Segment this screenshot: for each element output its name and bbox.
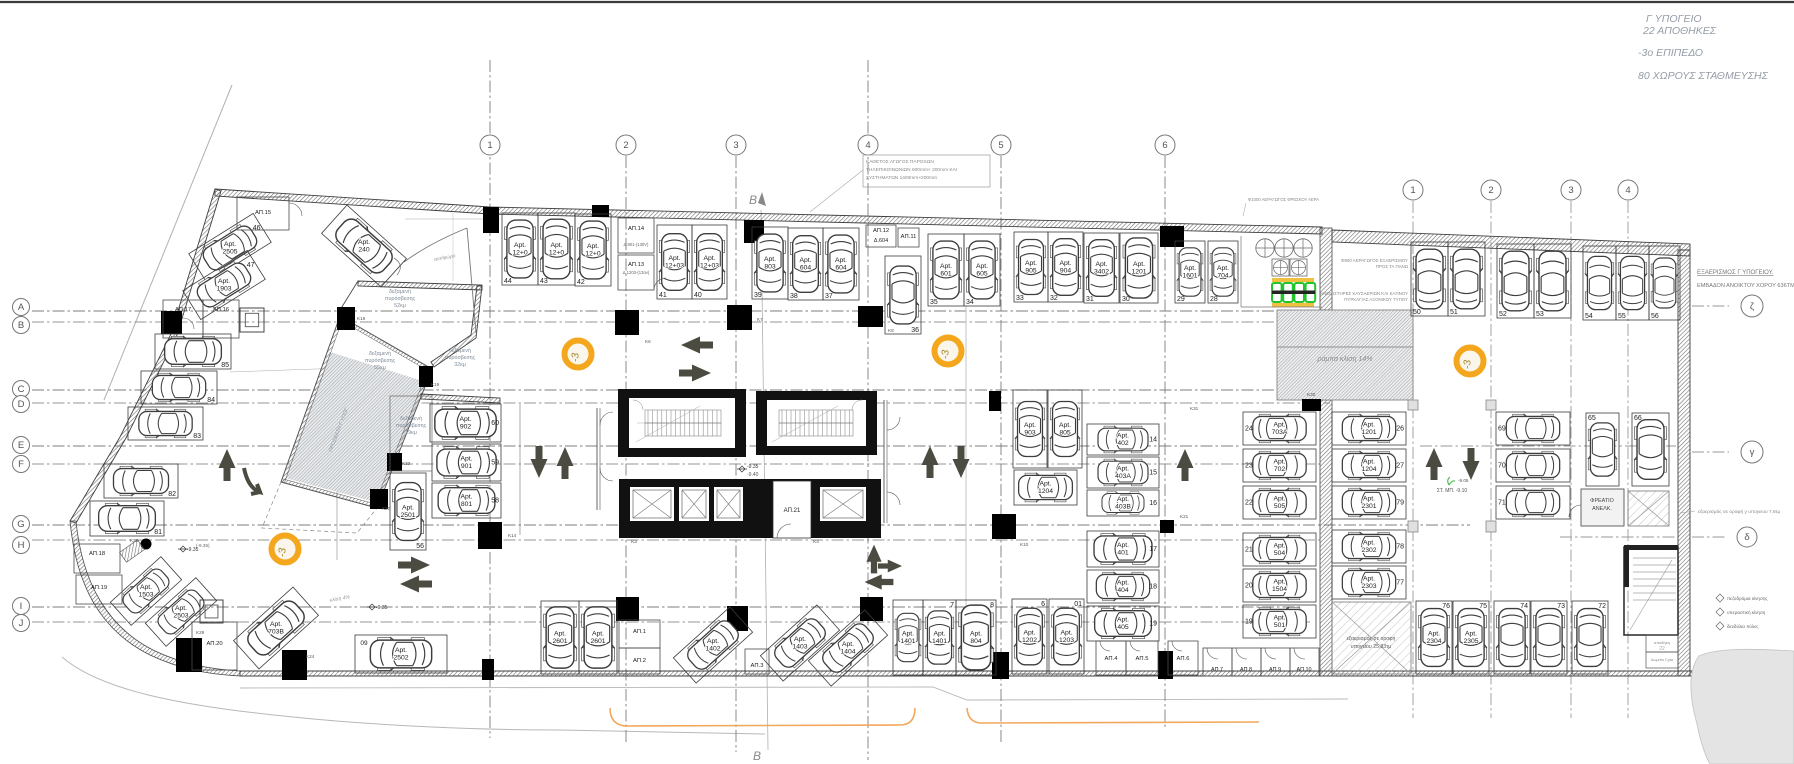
svg-text:1201: 1201 [1361, 429, 1376, 436]
svg-text:805: 805 [1059, 430, 1071, 437]
svg-text:H: H [18, 540, 25, 551]
svg-text:Γ ΥΠΟΓΕΙΟ: Γ ΥΠΟΓΕΙΟ [1646, 13, 1702, 25]
svg-text:55: 55 [1618, 313, 1626, 320]
svg-text:πυρόσβεσης: πυρόσβεσης [365, 357, 396, 364]
svg-text:δ: δ [1744, 532, 1749, 543]
svg-text:2601: 2601 [590, 638, 605, 645]
svg-text:Apt.: Apt. [1363, 496, 1375, 503]
svg-text:75: 75 [1479, 603, 1487, 610]
svg-text:ΑΠ.1: ΑΠ.1 [633, 629, 646, 635]
svg-text:K19: K19 [431, 382, 440, 387]
svg-text:52: 52 [1499, 311, 1507, 318]
svg-text:22: 22 [1245, 500, 1253, 507]
svg-text:50: 50 [1413, 309, 1421, 316]
svg-text:601: 601 [940, 271, 952, 278]
svg-text:78: 78 [1396, 544, 1404, 551]
svg-text:-9.40: -9.40 [747, 472, 759, 478]
svg-text:ΕΜΒΑΔΟΝ ΑΝΟΙΚΤΟΥ ΧΟΡΟΥ 636ΤΜ²: ΕΜΒΑΔΟΝ ΑΝΟΙΚΤΟΥ ΧΟΡΟΥ 636ΤΜ² [1697, 283, 1794, 289]
svg-text:77: 77 [1396, 580, 1404, 587]
svg-text:ΑΠ.4: ΑΠ.4 [1105, 656, 1119, 662]
svg-text:K4: K4 [813, 539, 819, 545]
svg-text:K6: K6 [645, 339, 651, 344]
svg-text:ΑΠ.18: ΑΠ.18 [89, 551, 105, 557]
svg-text:30: 30 [1122, 296, 1130, 303]
svg-text:19κμ: 19κμ [405, 430, 417, 436]
svg-text:Apt.: Apt. [459, 416, 471, 423]
svg-text:Apt.: Apt. [402, 505, 414, 512]
svg-text:1: 1 [487, 140, 492, 151]
svg-text:Apt.: Apt. [1117, 433, 1129, 440]
svg-text:31: 31 [1086, 296, 1094, 303]
svg-text:K24: K24 [306, 654, 315, 659]
svg-text:Apt.: Apt. [842, 641, 854, 648]
svg-text:-9.35: -9.35 [376, 605, 388, 611]
svg-text:ΑΠ.3: ΑΠ.3 [751, 663, 764, 669]
svg-text:81: 81 [154, 529, 162, 536]
svg-text:7: 7 [950, 602, 954, 609]
svg-text:δεξαμενή: δεξαμενή [389, 288, 411, 295]
svg-text:Apt.: Apt. [270, 621, 282, 628]
svg-text:1201: 1201 [1131, 269, 1146, 276]
svg-text:905: 905 [1025, 268, 1037, 275]
svg-text:Apt.: Apt. [1060, 630, 1072, 637]
svg-text:84: 84 [207, 397, 215, 404]
svg-text:K21: K21 [1180, 514, 1189, 519]
svg-text:28: 28 [1210, 296, 1218, 303]
svg-text:-9.05: -9.05 [1458, 478, 1469, 483]
svg-text:1204: 1204 [1361, 466, 1376, 473]
svg-text:51: 51 [1450, 309, 1458, 316]
svg-text:Apt.: Apt. [707, 638, 719, 645]
svg-text:-9.35: -9.35 [747, 464, 759, 470]
svg-text:Apt.: Apt. [514, 242, 526, 249]
svg-text:09: 09 [360, 640, 368, 647]
svg-text:Apt.: Apt. [703, 255, 715, 262]
svg-text:604: 604 [800, 265, 812, 272]
svg-text:ΑΠ.13: ΑΠ.13 [628, 262, 644, 268]
svg-text:704: 704 [1217, 273, 1229, 280]
svg-text:K3: K3 [631, 539, 637, 545]
svg-text:ΑΠ.19: ΑΠ.19 [91, 585, 107, 591]
svg-text:Apt.: Apt. [902, 631, 914, 638]
svg-text:ΚΑΘΕΤΟΣ ΑΓΩΓΟΣ ΠΑΡΟΧΩΝ: ΚΑΘΕΤΟΣ ΑΓΩΓΟΣ ΠΑΡΟΧΩΝ [866, 159, 934, 165]
svg-text:39: 39 [754, 292, 762, 299]
svg-text:Apt.: Apt. [395, 647, 407, 654]
svg-text:ΣΤ. ΜΠ. -9.10: ΣΤ. ΜΠ. -9.10 [1437, 488, 1468, 494]
svg-text:702: 702 [1274, 466, 1286, 473]
svg-text:-3: -3 [1462, 360, 1474, 369]
svg-text:εξαερισμός σε οροφή γ υπογειου: εξαερισμός σε οροφή γ υπογειου 7,6τμ [1698, 508, 1781, 515]
svg-text:Apt.: Apt. [1184, 265, 1196, 272]
svg-text:801: 801 [461, 501, 473, 508]
svg-text:1504: 1504 [1272, 586, 1287, 593]
svg-text:1601: 1601 [1182, 273, 1197, 280]
svg-text:Apt.: Apt. [1363, 540, 1375, 547]
svg-text:604: 604 [835, 265, 847, 272]
svg-text:Apt.: Apt. [1428, 631, 1440, 638]
svg-text:1204: 1204 [1038, 488, 1053, 495]
svg-text:65: 65 [1588, 415, 1596, 422]
svg-text:ΑΠ.11: ΑΠ.11 [901, 234, 917, 240]
svg-text:υπεραστική κίνηση: υπεραστική κίνηση [1727, 609, 1766, 615]
svg-text:Apt.: Apt. [1039, 481, 1051, 488]
svg-text:Apt.: Apt. [1117, 542, 1129, 549]
svg-text:πυρόσβεσης: πυρόσβεσης [385, 295, 416, 302]
svg-text:Apt.: Apt. [587, 243, 599, 250]
svg-text:ΑΠ.15: ΑΠ.15 [255, 210, 271, 216]
svg-text:K7: K7 [757, 317, 763, 322]
svg-text:Apt.: Apt. [1273, 459, 1285, 466]
svg-text:ΑΠ.14: ΑΠ.14 [628, 226, 645, 232]
svg-text:1903: 1903 [216, 286, 231, 293]
svg-text:2: 2 [1488, 185, 1493, 196]
svg-text:B: B [749, 193, 757, 207]
svg-text:22 ΑΠΟΘΗΚΕΣ: 22 ΑΠΟΘΗΚΕΣ [1642, 25, 1717, 37]
svg-text:12+0: 12+0 [512, 250, 528, 257]
svg-text:47: 47 [247, 262, 255, 269]
svg-text:12+03: 12+03 [665, 263, 684, 270]
svg-text:Apt.: Apt. [835, 257, 847, 264]
svg-text:2304: 2304 [1426, 638, 1441, 645]
svg-text:80 ΧΩΡΟΥΣ ΣΤΑΘΜΕΥΣΗΣ: 80 ΧΩΡΟΥΣ ΣΤΑΘΜΕΥΣΗΣ [1638, 70, 1769, 82]
svg-text:Apt.: Apt. [1465, 631, 1477, 638]
svg-text:14: 14 [1149, 437, 1157, 444]
svg-text:Apt.: Apt. [1117, 466, 1129, 473]
svg-text:Apt.: Apt. [224, 241, 236, 248]
svg-text:15: 15 [1149, 470, 1157, 477]
svg-text:πεζοδρόμια κίνησης: πεζοδρόμια κίνησης [1727, 595, 1768, 602]
svg-text:24: 24 [1245, 426, 1253, 433]
svg-text:904: 904 [1060, 268, 1072, 275]
svg-text:72: 72 [1598, 603, 1606, 610]
svg-text:Apt.: Apt. [1217, 265, 1229, 272]
svg-text:2601: 2601 [552, 638, 567, 645]
svg-text:ΣΥΣΤΗΜΑΤΩΝ 1400mm×200mm: ΣΥΣΤΗΜΑΤΩΝ 1400mm×200mm [866, 175, 937, 181]
svg-text:54: 54 [1585, 313, 1593, 320]
svg-text:2305: 2305 [1463, 638, 1478, 645]
svg-text:1401: 1401 [900, 638, 915, 645]
svg-text:ΑΝΕΛΚ.: ΑΝΕΛΚ. [1592, 506, 1612, 512]
svg-text:Apt.: Apt. [1133, 261, 1145, 268]
svg-text:ΠΥΡΚΑΓΙΑΣ ΑΞΟΝΙΚΟΥ ΤΥΠΟΥ: ΠΥΡΚΑΓΙΑΣ ΑΞΟΝΙΚΟΥ ΤΥΠΟΥ [1344, 297, 1408, 302]
svg-text:36: 36 [911, 327, 919, 334]
svg-text:Apt.: Apt. [460, 494, 472, 501]
svg-text:K10: K10 [1020, 542, 1029, 547]
svg-text:66: 66 [1634, 415, 1642, 422]
svg-text:32κμ: 32κμ [454, 362, 466, 368]
svg-text:37: 37 [825, 293, 833, 300]
svg-text:70: 70 [1498, 463, 1506, 470]
svg-text:44: 44 [504, 278, 512, 285]
svg-text:αποθήκη: αποθήκη [1654, 640, 1670, 645]
svg-text:K20: K20 [382, 506, 391, 511]
svg-text:85: 85 [221, 362, 229, 369]
svg-text:1401: 1401 [932, 638, 947, 645]
svg-text:903: 903 [1024, 430, 1036, 437]
svg-text:ΑΠ.17: ΑΠ.17 [175, 307, 191, 313]
svg-text:Apt.: Apt. [1095, 261, 1107, 268]
svg-text:υπογείου 25,83τμ: υπογείου 25,83τμ [1351, 644, 1391, 650]
svg-text:ΦΡΕΑΤΙΟ: ΦΡΕΑΤΙΟ [1590, 498, 1614, 504]
svg-text:ΑΝΕΜΙΣΤΗΡΕΣ ΚΑΥΣΑΕΡΙΩΝ ΚΑΙ ΚΑΠ: ΑΝΕΜΙΣΤΗΡΕΣ ΚΑΥΣΑΕΡΙΩΝ ΚΑΙ ΚΑΠΝΟΥ [1320, 291, 1408, 296]
svg-text:Apt.: Apt. [1273, 579, 1285, 586]
svg-text:55κμ: 55κμ [374, 365, 386, 371]
svg-text:902: 902 [460, 424, 472, 431]
svg-text:18: 18 [1149, 584, 1157, 591]
svg-text:Apt.: Apt. [1025, 260, 1037, 267]
svg-text:I: I [20, 601, 23, 612]
svg-text:Φ800 ΑΕΡΑΓΩΓΟΣ ΕΞΑΕΡΙΣΜΟΥ: Φ800 ΑΕΡΑΓΩΓΟΣ ΕΞΑΕΡΙΣΜΟΥ [1341, 258, 1408, 263]
svg-text:73: 73 [1557, 603, 1565, 610]
svg-text:23: 23 [1245, 463, 1253, 470]
svg-text:Apt.: Apt. [1363, 422, 1375, 429]
svg-text:Apt.: Apt. [1117, 496, 1129, 503]
svg-text:29: 29 [1177, 296, 1185, 303]
svg-text:401: 401 [1117, 550, 1129, 557]
svg-text:58: 58 [491, 498, 499, 505]
svg-text:504: 504 [1274, 550, 1286, 557]
svg-text:27: 27 [1396, 463, 1404, 470]
svg-text:5: 5 [998, 140, 1003, 151]
svg-text:Apt.: Apt. [140, 584, 152, 591]
svg-text:Δ.1203-(13οv): Δ.1203-(13οv) [623, 270, 650, 275]
svg-text:Apt.: Apt. [592, 631, 604, 638]
svg-text:12+0: 12+0 [549, 250, 565, 257]
svg-text:804: 804 [970, 638, 982, 645]
svg-text:Apt.: Apt. [1273, 543, 1285, 550]
svg-text:C: C [18, 384, 25, 395]
svg-text:2301: 2301 [1361, 503, 1376, 510]
svg-text:Apt.: Apt. [1273, 422, 1285, 429]
svg-text:Apt.: Apt. [1117, 580, 1129, 587]
svg-text:46: 46 [253, 225, 261, 232]
svg-text:83: 83 [193, 433, 201, 440]
svg-text:76: 76 [1442, 603, 1450, 610]
svg-text:-3: -3 [277, 548, 289, 557]
svg-text:Apt.: Apt. [1363, 459, 1375, 466]
svg-text:ΠΡΟΣ ΤΑ ΠΑΝΩ: ΠΡΟΣ ΤΑ ΠΑΝΩ [1376, 264, 1409, 269]
svg-text:ράμπα κλίση 14%: ράμπα κλίση 14% [1317, 355, 1373, 363]
svg-text:A: A [18, 302, 25, 313]
svg-text:Apt.: Apt. [554, 631, 566, 638]
svg-text:δενδύλια πύλες: δενδύλια πύλες [1727, 623, 1759, 629]
svg-text:19: 19 [1245, 619, 1253, 626]
svg-text:Apt.: Apt. [1363, 576, 1375, 583]
svg-text:Apt.: Apt. [1273, 496, 1285, 503]
svg-text:2: 2 [623, 140, 628, 151]
svg-text:(-9.35): (-9.35) [196, 543, 210, 548]
svg-text:Apt.: Apt. [1059, 260, 1071, 267]
svg-text:2505: 2505 [222, 249, 237, 256]
svg-text:1402: 1402 [705, 646, 720, 653]
svg-text:Apt.: Apt. [976, 263, 988, 270]
svg-text:505: 505 [1274, 503, 1286, 510]
svg-text:K8: K8 [888, 328, 894, 333]
svg-text:20: 20 [1245, 583, 1253, 590]
svg-text:ΑΠ.8: ΑΠ.8 [1240, 667, 1252, 673]
svg-text:Apt.: Apt. [1273, 615, 1285, 622]
svg-text:Φ1000 ΑΕΡΑΓΩΓΟΣ ΦΡΕΣΚΟΥ ΑΕΡΑ: Φ1000 ΑΕΡΑΓΩΓΟΣ ΦΡΕΣΚΟΥ ΑΕΡΑ [1248, 197, 1319, 202]
svg-text:2303: 2303 [1361, 583, 1376, 590]
svg-text:1403: 1403 [792, 644, 807, 651]
svg-text:22: 22 [1659, 646, 1665, 652]
svg-text:Apt.: Apt. [940, 263, 952, 270]
svg-text:B: B [753, 749, 761, 763]
svg-text:γ: γ [1750, 447, 1755, 458]
svg-text:Apt.: Apt. [358, 239, 370, 246]
svg-text:ΑΠ.12: ΑΠ.12 [873, 228, 889, 234]
svg-text:ΑΠ.5: ΑΠ.5 [1136, 656, 1149, 662]
svg-text:Apt.: Apt. [1024, 422, 1036, 429]
svg-text:34: 34 [966, 299, 974, 306]
svg-text:56: 56 [416, 543, 424, 550]
svg-text:ΑΠ.9: ΑΠ.9 [1269, 667, 1281, 673]
svg-text:403A: 403A [1115, 473, 1131, 480]
svg-text:Apt.: Apt. [550, 242, 562, 249]
svg-text:74: 74 [1520, 603, 1528, 610]
svg-text:-3: -3 [570, 353, 582, 362]
svg-text:πυρόσβεσης: πυρόσβεσης [445, 354, 476, 361]
svg-text:Δωμ/τιο Cyta: Δωμ/τιο Cyta [1651, 658, 1674, 662]
svg-text:8: 8 [990, 602, 994, 609]
svg-text:33: 33 [1016, 295, 1024, 302]
svg-text:4: 4 [1625, 185, 1630, 196]
svg-text:1203: 1203 [1059, 637, 1074, 644]
svg-text:60: 60 [491, 420, 499, 427]
svg-text:56: 56 [1651, 313, 1659, 320]
svg-text:Δ.604: Δ.604 [874, 238, 888, 244]
svg-text:01: 01 [1074, 601, 1082, 608]
svg-text:ΑΠ.21: ΑΠ.21 [784, 508, 801, 514]
svg-text:F: F [18, 459, 24, 470]
svg-text:501: 501 [1274, 622, 1286, 629]
svg-text:4: 4 [865, 140, 870, 151]
svg-text:Apt.: Apt. [175, 605, 187, 612]
svg-text:12+03: 12+03 [700, 263, 719, 270]
svg-text:K29: K29 [196, 630, 205, 635]
svg-text:ΕΞΑΕΡΙΣΜΟΣ Γ ΥΠΟΓΕΙΟΥ.: ΕΞΑΕΡΙΣΜΟΣ Γ ΥΠΟΓΕΙΟΥ. [1697, 270, 1774, 276]
svg-text:1503: 1503 [138, 592, 153, 599]
svg-text:6: 6 [1041, 601, 1045, 608]
svg-text:πυρόσβεσης: πυρόσβεσης [396, 422, 427, 429]
svg-text:Apt.: Apt. [794, 636, 806, 643]
svg-text:-3: -3 [940, 350, 952, 359]
svg-text:605: 605 [976, 271, 988, 278]
svg-text:Apt.: Apt. [218, 278, 230, 285]
svg-text:E: E [18, 440, 24, 451]
svg-text:δεξαμενή: δεξαμενή [369, 350, 391, 357]
svg-text:6: 6 [1162, 140, 1167, 151]
svg-text:52κμ: 52κμ [394, 303, 406, 309]
svg-text:59: 59 [491, 460, 499, 467]
svg-text:D: D [18, 399, 25, 410]
svg-text:38: 38 [790, 293, 798, 300]
svg-text:Apt.: Apt. [1023, 630, 1035, 637]
svg-text:Apt.: Apt. [1059, 422, 1071, 429]
svg-text:240: 240 [358, 247, 370, 254]
svg-text:82: 82 [168, 491, 176, 498]
svg-text:405: 405 [1117, 624, 1129, 631]
svg-text:ΑΠ.10: ΑΠ.10 [1297, 667, 1312, 673]
svg-text:32: 32 [1050, 295, 1058, 302]
svg-text:19: 19 [1149, 621, 1157, 628]
svg-text:803: 803 [764, 264, 776, 271]
svg-text:B: B [18, 320, 24, 331]
svg-text:δεξαμενή: δεξαμενή [400, 415, 422, 422]
svg-text:404: 404 [1117, 587, 1129, 594]
svg-text:402: 402 [1117, 440, 1129, 447]
svg-text:δεξαμενή: δεξαμενή [449, 347, 471, 354]
svg-text:Apt.: Apt. [668, 255, 680, 262]
svg-text:G: G [17, 519, 24, 530]
svg-text:703A: 703A [1272, 429, 1288, 436]
svg-text:1404: 1404 [840, 649, 855, 656]
svg-text:ΑΠ.6: ΑΠ.6 [1177, 656, 1190, 662]
svg-text:Apt.: Apt. [764, 256, 776, 263]
svg-text:-3ο ΕΠΙΠΕΔΟ: -3ο ΕΠΙΠΕΔΟ [1638, 47, 1703, 59]
svg-text:1: 1 [1410, 185, 1415, 196]
svg-text:2302: 2302 [1361, 547, 1376, 554]
svg-text:53: 53 [1536, 311, 1544, 318]
svg-text:12+0: 12+0 [585, 251, 601, 258]
svg-text:403B: 403B [1115, 504, 1131, 511]
svg-text:ΑΠ.2: ΑΠ.2 [633, 658, 646, 664]
svg-text:703B: 703B [268, 629, 284, 636]
svg-text:Apt.: Apt. [970, 631, 982, 638]
svg-text:42: 42 [577, 279, 585, 286]
svg-text:69: 69 [1498, 426, 1506, 433]
svg-text:2502: 2502 [393, 655, 408, 662]
svg-text:43: 43 [540, 278, 548, 285]
svg-text:K30: K30 [1307, 392, 1316, 397]
svg-text:16: 16 [1149, 500, 1157, 507]
svg-text:ΑΠ.7: ΑΠ.7 [1211, 667, 1223, 673]
svg-text:41: 41 [659, 292, 667, 299]
svg-text:ΑΠ.16: ΑΠ.16 [213, 307, 229, 313]
svg-text:J: J [19, 618, 24, 629]
svg-text:K33: K33 [402, 461, 411, 466]
svg-text:2501: 2501 [400, 512, 415, 519]
svg-text:ΤΗΛΕΠΙΚΟΙΝΩΝΙΩΝ 600mm× 200mm Κ: ΤΗΛΕΠΙΚΟΙΝΩΝΙΩΝ 600mm× 200mm ΚΑΙ [866, 167, 957, 173]
svg-text:71: 71 [1498, 500, 1506, 507]
svg-text:Δ.901-(130V): Δ.901-(130V) [624, 242, 650, 247]
svg-text:901: 901 [461, 463, 473, 470]
svg-text:3: 3 [1568, 185, 1573, 196]
svg-text:3: 3 [733, 140, 738, 151]
svg-text:K18: K18 [357, 316, 366, 321]
svg-text:Apt.: Apt. [460, 456, 472, 463]
svg-text:Apt.: Apt. [799, 257, 811, 264]
svg-text:3402: 3402 [1094, 269, 1109, 276]
svg-text:1202: 1202 [1022, 637, 1037, 644]
svg-text:2503: 2503 [173, 613, 188, 620]
svg-text:26: 26 [1396, 426, 1404, 433]
svg-text:40: 40 [694, 292, 702, 299]
svg-text:17: 17 [1149, 546, 1157, 553]
svg-text:ΑΠ.20: ΑΠ.20 [206, 641, 222, 647]
svg-text:Apt.: Apt. [1117, 617, 1129, 624]
svg-text:εξαερισμός σε οροφή: εξαερισμός σε οροφή [1347, 635, 1396, 642]
svg-text:79: 79 [1396, 500, 1404, 507]
svg-text:21: 21 [1245, 547, 1253, 554]
svg-text:K31: K31 [1190, 406, 1199, 411]
svg-text:Apt.: Apt. [933, 631, 945, 638]
svg-text:35: 35 [930, 299, 938, 306]
svg-text:K14: K14 [508, 533, 517, 538]
